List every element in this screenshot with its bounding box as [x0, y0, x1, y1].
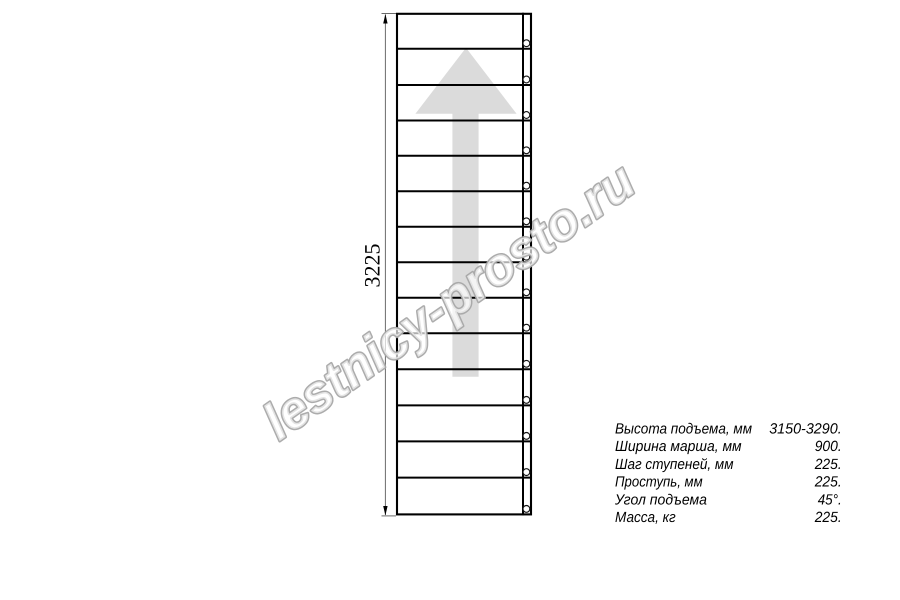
- svg-text:225.: 225.: [814, 510, 842, 526]
- svg-text:lestnicy-prosto.ru: lestnicy-prosto.ru: [253, 152, 646, 451]
- svg-text:Ширина марша, мм: Ширина марша, мм: [615, 439, 742, 455]
- svg-text:Высота подъема, мм: Высота подъема, мм: [615, 422, 752, 438]
- svg-text:45°.: 45°.: [818, 492, 842, 508]
- svg-text:3225: 3225: [360, 244, 385, 288]
- svg-text:225.: 225.: [814, 457, 842, 473]
- svg-text:225.: 225.: [814, 475, 842, 491]
- svg-text:Проступь, мм: Проступь, мм: [615, 475, 703, 491]
- svg-text:Шаг ступеней, мм: Шаг ступеней, мм: [615, 457, 734, 473]
- svg-text:Угол подъема: Угол подъема: [614, 492, 707, 508]
- svg-text:3150-3290.: 3150-3290.: [769, 422, 842, 438]
- svg-text:900.: 900.: [815, 439, 842, 455]
- svg-text:Масса, кг: Масса, кг: [615, 510, 676, 526]
